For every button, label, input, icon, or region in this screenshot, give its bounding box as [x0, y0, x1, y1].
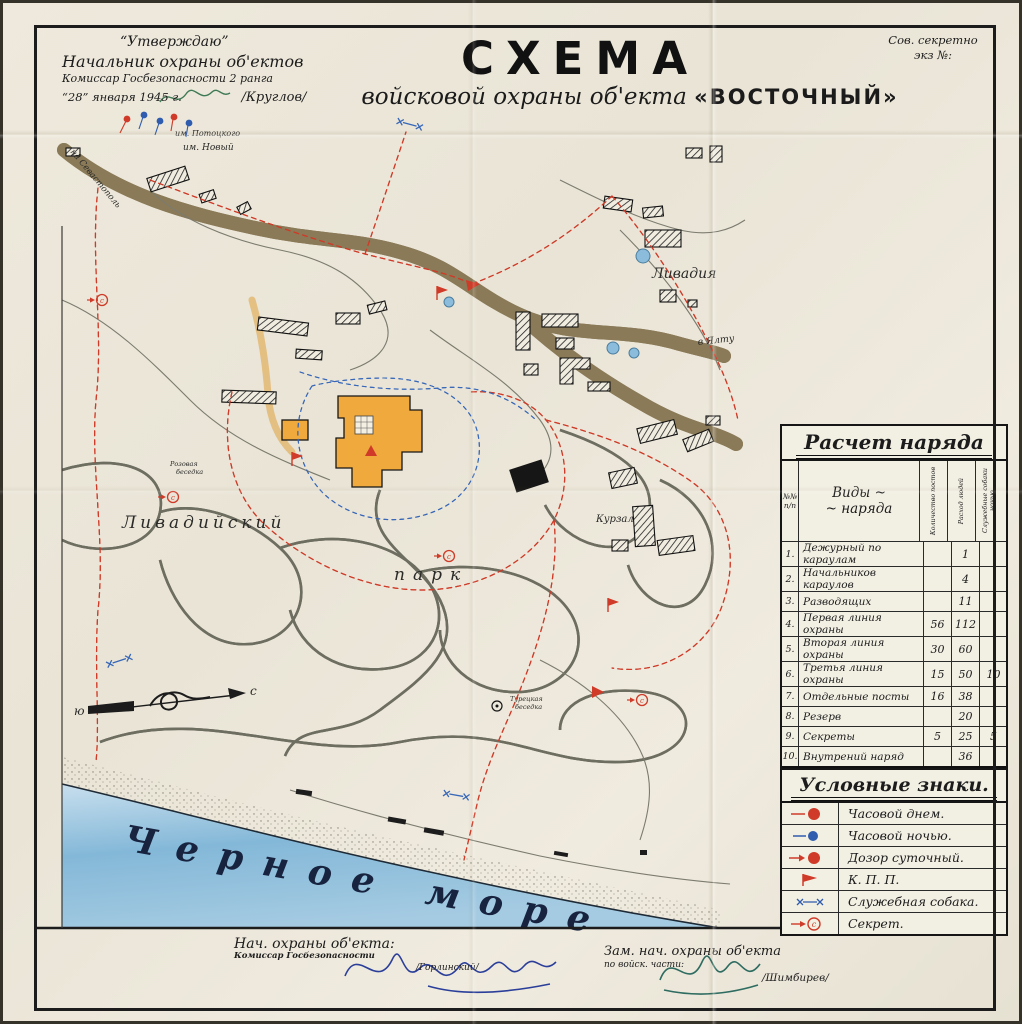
table-row: 6.Третья линия охраны155010	[782, 661, 1006, 686]
table-row: 1.Дежурный по караулам1	[782, 541, 1006, 566]
black-sea: Черное море	[62, 757, 722, 944]
table-row: 10.Внутрений наряд36	[782, 746, 1006, 766]
right-signer-sub-role: по войск. части:	[604, 960, 781, 971]
signature-block-left: Нач. охраны об'екта: Комиссар Госбезопас…	[234, 936, 395, 962]
approval-word: “Утверждаю”	[62, 34, 342, 52]
compass: ю с	[74, 684, 257, 718]
patrol-lines-day	[95, 132, 738, 860]
right-signer-name: /Шимбирев/	[762, 972, 829, 984]
turkish-pavilion-label-2: беседка	[515, 703, 542, 711]
kurzal-label: Курзал	[595, 514, 634, 525]
svg-text:с: с	[640, 697, 644, 705]
livadia-label: Ливадия	[651, 266, 716, 282]
park-label-2: парк	[394, 565, 468, 585]
right-signer-role: Зам. нач. охраны об'екта	[604, 944, 781, 960]
table-row: 8.Резерв20	[782, 706, 1006, 726]
col-people: Расход людей	[947, 461, 975, 541]
sentry-night-icon	[782, 825, 839, 846]
svg-text:с: с	[100, 297, 104, 305]
col-posts: Количество постов	[919, 461, 947, 541]
approval-role-2: Комиссар Госбезопасности 2 ранга	[62, 72, 342, 86]
legend-item: Дозор суточный.	[782, 846, 1006, 868]
compass-north-label: с	[250, 684, 257, 698]
svg-text:с: с	[447, 553, 451, 561]
page-title: СХЕМА	[340, 36, 820, 81]
rose-pavilion-label-2: беседка	[176, 468, 203, 476]
turkish-pavilion-label-1: Турецкая	[510, 695, 543, 703]
signature-block-right: Зам. нач. охраны об'екта по войск. части…	[604, 944, 781, 970]
legend-title: Условные знаки.	[782, 770, 1006, 799]
table-header-row: №№п/п Виды ~~ наряда Количество постов Р…	[782, 461, 1006, 541]
secrecy-level: Сов. секретно	[872, 33, 994, 48]
left-signer-name: /Горлинский/	[416, 963, 479, 973]
approval-date-line: “28” января 1945 г. /Круглов/	[62, 90, 342, 106]
svg-text:с: с	[812, 920, 817, 929]
service-dog-marks	[106, 118, 470, 800]
copy-number: экз №:	[872, 48, 994, 63]
title-block: СХЕМА	[340, 36, 820, 81]
legend-item: с Секрет.	[782, 912, 1006, 934]
livadia-palace	[282, 396, 422, 487]
legend-item: Служебная собака.	[782, 890, 1006, 912]
table-row: 2.Начальников караулов4	[782, 566, 1006, 591]
approval-role-1: Начальник охраны об'ектов	[62, 52, 342, 72]
subtitle-text: войсковой охраны об'екта	[361, 84, 686, 110]
object-name: «ВОСТОЧНЫЙ»	[694, 85, 898, 109]
legend-item: Часовой ночью.	[782, 824, 1006, 846]
left-signer-rank: Комиссар Госбезопасности	[234, 952, 395, 962]
legend-item: Часовой днем.	[782, 803, 1006, 824]
col-kind: Виды ~~ наряда	[798, 461, 919, 541]
svg-text:с: с	[171, 494, 175, 502]
approval-block: “Утверждаю” Начальник охраны об'ектов Ко…	[62, 34, 342, 107]
rose-pavilion-label-1: Розовая	[169, 460, 198, 468]
table-row: 4.Первая линия охраны56112	[782, 611, 1006, 636]
estate-potocki-label: им. Потоцкого	[175, 129, 240, 138]
legend-item: К. П. П.	[782, 868, 1006, 890]
page-subtitle: войсковой охраны об'екта «ВОСТОЧНЫЙ»	[350, 84, 910, 110]
legend-panel: Условные знаки. Часовой днем. Часовой но…	[780, 768, 1008, 936]
patrol-icon	[782, 847, 839, 868]
left-signer-role: Нач. охраны об'екта:	[234, 936, 395, 952]
estate-novy-label: им. Новый	[183, 143, 234, 153]
table-title: Расчет наряда	[782, 426, 1006, 457]
service-dog-icon	[782, 891, 839, 912]
compass-south-label: ю	[74, 704, 85, 718]
table-row: 9.Секреты5255	[782, 726, 1006, 746]
approval-date: “28” января 1945 г.	[62, 90, 182, 104]
checkpoint-flag-icon	[782, 869, 839, 890]
duty-calculation-table: Расчет наряда №№п/п Виды ~~ наряда Колич…	[780, 424, 1008, 792]
park-label-1: Ливадийский	[121, 513, 285, 533]
approval-signer-name: /Круглов/	[241, 90, 306, 105]
col-number: №№п/п	[782, 461, 798, 541]
secret-post-icon: с	[782, 913, 839, 934]
secrecy-stamp: Сов. секретно экз №:	[872, 33, 994, 63]
sentry-day-icon	[782, 803, 839, 824]
col-dogs: Служебные собаки ночью	[975, 461, 1003, 541]
table-row: 3.Разводящих11	[782, 591, 1006, 611]
pavilions	[492, 701, 502, 711]
table-row: 5.Вторая линия охраны3060	[782, 636, 1006, 661]
table-row: 7.Отдельные посты1638	[782, 686, 1006, 706]
